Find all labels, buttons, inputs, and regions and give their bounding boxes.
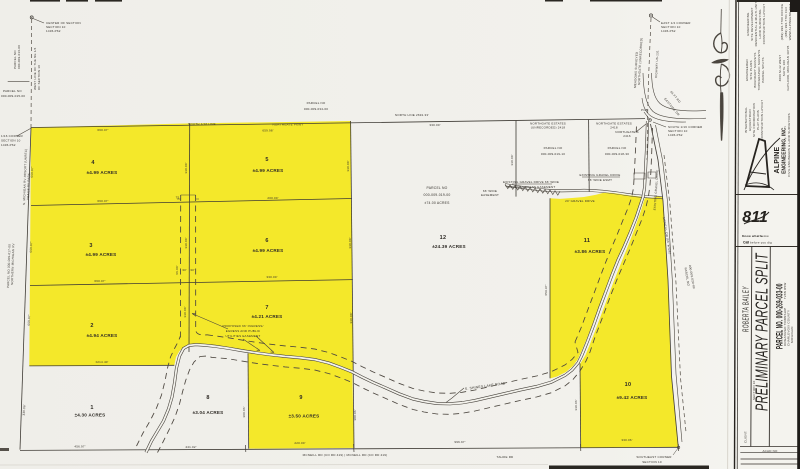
- svg-text:659.98’: 659.98’: [262, 129, 273, 133]
- svg-text:330.00’: 330.00’: [184, 162, 188, 173]
- svg-text:±3.50 ACRES: ±3.50 ACRES: [289, 414, 320, 419]
- svg-text:±214.40’: ±214.40’: [95, 360, 108, 364]
- svg-text:EGRESS AND PUBLIC: EGRESS AND PUBLIC: [226, 329, 261, 333]
- svg-text:75: 75: [176, 196, 180, 200]
- svg-text:ROBERTA BAILEY: ROBERTA BAILEY: [742, 286, 751, 332]
- svg-text:659.97’: 659.97’: [544, 284, 548, 295]
- svg-text:PO8: PO8: [641, 108, 648, 112]
- svg-text:±3.04 ACRES: ±3.04 ACRES: [193, 410, 224, 415]
- svg-text:PARCEL NO: PARCEL NO: [307, 101, 326, 105]
- svg-text:300.06’: 300.06’: [353, 409, 357, 420]
- svg-text:1436-P62: 1436-P62: [668, 133, 683, 137]
- svg-text:SECTION 10: SECTION 10: [752, 380, 756, 400]
- svg-text:±9.42 ACRES: ±9.42 ACRES: [617, 395, 648, 400]
- svg-text:(UNRECORDED) 2418: (UNRECORDED) 2418: [531, 126, 566, 130]
- svg-text:000-009-019-10: 000-009-019-10: [541, 152, 565, 156]
- svg-text:UTILITIES EASEMENT: UTILITIES EASEMENT: [226, 334, 261, 338]
- svg-text:EASEMENT: EASEMENT: [481, 193, 499, 197]
- svg-text:PROPOSED 66’ INGRESS/: PROPOSED 66’ INGRESS/: [222, 324, 263, 328]
- svg-text:SECTION 10: SECTION 10: [642, 460, 662, 464]
- svg-text:33’: 33’: [190, 268, 195, 272]
- svg-text:66’ WIDE ESMT: 66’ WIDE ESMT: [588, 178, 612, 182]
- svg-text:PARCEL NO: PARCEL NO: [426, 186, 447, 190]
- svg-text:330.00’: 330.00’: [429, 123, 440, 127]
- svg-text:300.06’: 300.06’: [242, 406, 246, 417]
- svg-text:before you dig: before you dig: [750, 241, 772, 245]
- svg-text:OF SECTION 10: OF SECTION 10: [37, 65, 41, 90]
- svg-text:±3.86 ACRES: ±3.86 ACRES: [575, 249, 606, 254]
- svg-text:±74.00 ACRES: ±74.00 ACRES: [424, 201, 450, 205]
- svg-text:±4.94 ACRES: ±4.94 ACRES: [87, 333, 118, 338]
- svg-text:330.00’: 330.00’: [348, 237, 352, 248]
- svg-text:220.00’: 220.00’: [294, 441, 305, 445]
- svg-text:660.07’: 660.07’: [97, 199, 108, 203]
- svg-text:11: 11: [584, 238, 590, 244]
- svg-text:996.97’: 996.97’: [454, 440, 465, 444]
- svg-text:INGRESS/EGRESS EASEMENT: INGRESS/EGRESS EASEMENT: [507, 185, 556, 189]
- svg-text:2416: 2416: [623, 134, 631, 138]
- svg-text:12: 12: [440, 235, 447, 241]
- svg-text:GAYLORD, MICHIGAN 49735: GAYLORD, MICHIGAN 49735: [786, 45, 790, 90]
- svg-text:T28N R5W: T28N R5W: [783, 283, 787, 299]
- svg-text:6: 6: [265, 238, 268, 244]
- svg-text:ACAD NO: ACAD NO: [762, 449, 778, 453]
- svg-text:330.00’: 330.00’: [510, 154, 514, 165]
- svg-text:000-009-015-00: 000-009-015-00: [1, 94, 25, 98]
- svg-text:NORTH LINE 2691.33’: NORTH LINE 2691.33’: [395, 113, 429, 117]
- svg-text:659.97’: 659.97’: [27, 314, 31, 326]
- svg-text:CIVIL ENGINEERS & LAND SURVEYO: CIVIL ENGINEERS & LAND SURVEYORS: [787, 113, 791, 177]
- svg-text:1436-P62: 1436-P62: [1, 143, 16, 147]
- svg-text:10: 10: [625, 382, 632, 388]
- svg-text:PARCEL NO: PARCEL NO: [544, 146, 563, 150]
- svg-text:33’: 33’: [182, 268, 187, 272]
- svg-text:330.00’: 330.00’: [184, 237, 188, 248]
- svg-text:000-009-016-00: 000-009-016-00: [17, 45, 21, 69]
- svg-text:330.00’: 330.00’: [183, 306, 187, 317]
- svg-text:EXISTING GRAVEL DRIVE 66’ WIDE: EXISTING GRAVEL DRIVE 66’ WIDE: [503, 180, 559, 184]
- svg-text:CLIENT:: CLIENT:: [744, 430, 748, 443]
- svg-text:3: 3: [89, 243, 92, 249]
- svg-text:EXISTING GRAVEL DRIVE: EXISTING GRAVEL DRIVE: [580, 173, 621, 177]
- svg-text:330.06’: 330.06’: [574, 399, 578, 410]
- svg-text:1436-P62: 1436-P62: [661, 29, 676, 33]
- svg-text:441.02’: 441.02’: [185, 445, 196, 449]
- svg-text:1436-P62: 1436-P62: [46, 29, 61, 33]
- svg-text:000-009-018-30: 000-009-018-30: [605, 152, 629, 156]
- svg-text:8: 8: [206, 395, 209, 401]
- svg-text:NORTHGATE PKWY: NORTHGATE PKWY: [272, 123, 303, 127]
- svg-text:±4.99 ACRES: ±4.99 ACRES: [253, 168, 284, 173]
- svg-text:330.00’: 330.00’: [349, 312, 353, 323]
- svg-text:1/16 CORNER: 1/16 CORNER: [1, 134, 24, 138]
- svg-text:TAHOE RD: TAHOE RD: [497, 455, 515, 459]
- svg-text:330.00’: 330.00’: [346, 160, 350, 171]
- svg-text:659.97’: 659.97’: [29, 241, 33, 253]
- svg-text:±24.39 ACRES: ±24.39 ACRES: [432, 244, 466, 249]
- svg-text:PARCEL NO: PARCEL NO: [608, 146, 627, 150]
- svg-text:660.07’: 660.07’: [97, 128, 108, 132]
- svg-text:SOUTHEAST CORNER: SOUTHEAST CORNER: [636, 455, 672, 459]
- svg-text:SOUTH 1/16 LINE: SOUTH 1/16 LINE: [188, 122, 216, 126]
- svg-text:±4.99 ACRES: ±4.99 ACRES: [253, 248, 284, 253]
- svg-text:66.00’: 66.00’: [175, 265, 179, 275]
- svg-text:1: 1: [90, 405, 93, 411]
- svg-text:PARCEL SPLITS: PARCEL SPLITS: [761, 57, 765, 82]
- svg-text:330.06’: 330.06’: [22, 404, 27, 416]
- svg-text:MCNEILL RD (CO RD 419) | MCNEI: MCNEILL RD (CO RD 419) | MCNEILL RD (CO …: [303, 453, 388, 457]
- svg-text:below: below: [760, 234, 769, 238]
- svg-text:20’ GRAVEL DRIVE: 20’ GRAVEL DRIVE: [565, 199, 595, 203]
- svg-text:660.07’: 660.07’: [94, 279, 105, 283]
- svg-text:±4.21 ACRES: ±4.21 ACRES: [252, 314, 283, 319]
- svg-text:ALPINE: ALPINE: [774, 146, 781, 173]
- svg-text:456.97’: 456.97’: [74, 445, 85, 449]
- svg-text:330.06’: 330.06’: [621, 438, 632, 442]
- svg-text:811: 811: [742, 209, 768, 226]
- svg-text:CONSTRUCTION LAYOUT: CONSTRUCTION LAYOUT: [760, 100, 764, 141]
- svg-text:200.00’: 200.00’: [267, 196, 278, 200]
- svg-text:MICHIGAN: MICHIGAN: [790, 326, 794, 343]
- svg-text:SECTION 10: SECTION 10: [1, 139, 21, 143]
- svg-text:000-009-034-00: 000-009-034-00: [304, 107, 328, 111]
- svg-text:CONSTRUCTION LAYOUT: CONSTRUCTION LAYOUT: [762, 4, 766, 45]
- svg-text:±4.99 ACRES: ±4.99 ACRES: [86, 252, 117, 257]
- svg-text:9: 9: [299, 395, 302, 401]
- svg-text:PARCEL NO: PARCEL NO: [3, 89, 22, 93]
- svg-text:000-009-019-00: 000-009-019-00: [424, 193, 451, 197]
- svg-text:7: 7: [265, 305, 268, 311]
- svg-text:±4.30 ACRES: ±4.30 ACRES: [75, 413, 106, 418]
- svg-text:±4.99 ACRES: ±4.99 ACRES: [87, 170, 118, 175]
- svg-text:2: 2: [90, 323, 93, 329]
- svg-text:Call: Call: [743, 241, 749, 245]
- svg-text:2418: 2418: [610, 126, 618, 130]
- svg-text:330.00’: 330.00’: [266, 275, 277, 279]
- svg-text:5: 5: [265, 157, 268, 163]
